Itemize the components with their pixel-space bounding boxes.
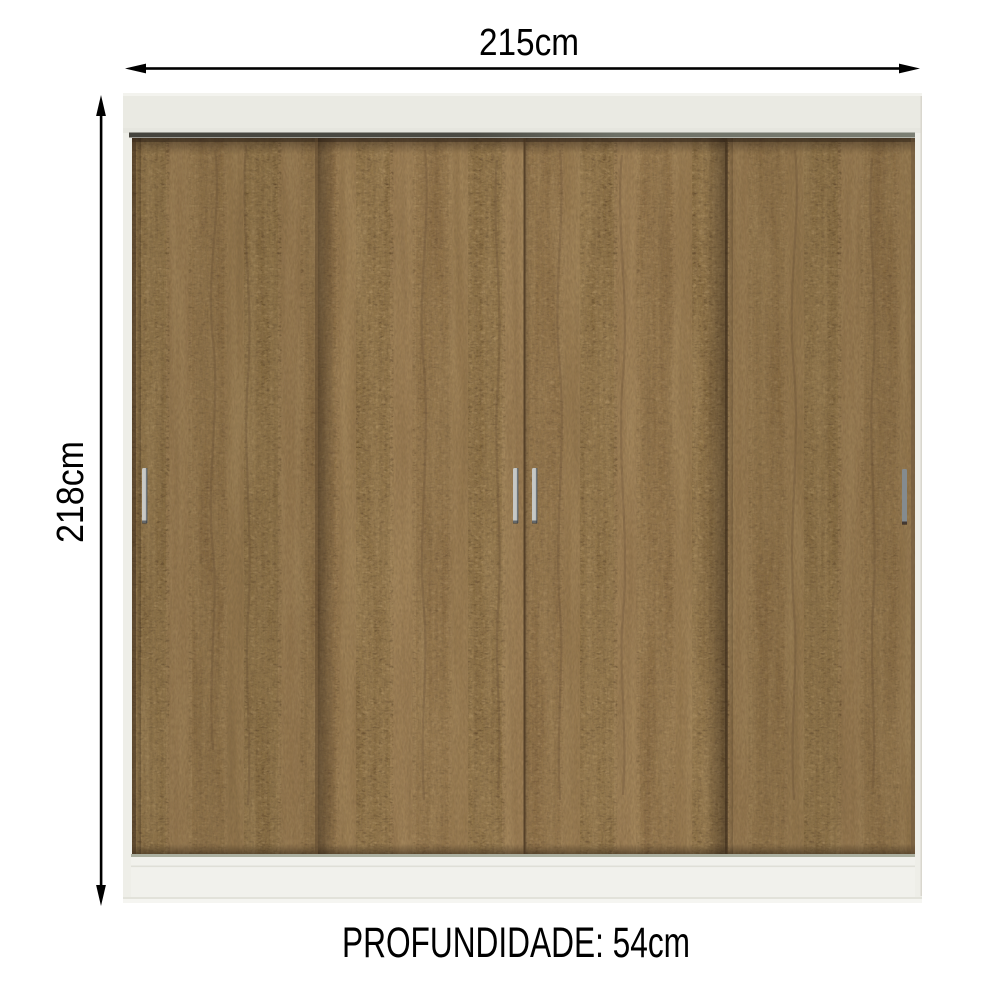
svg-text:218cm: 218cm xyxy=(50,441,92,543)
svg-text:PROFUNDIDADE: 54cm: PROFUNDIDADE: 54cm xyxy=(342,919,690,967)
svg-text:215cm: 215cm xyxy=(479,22,579,64)
